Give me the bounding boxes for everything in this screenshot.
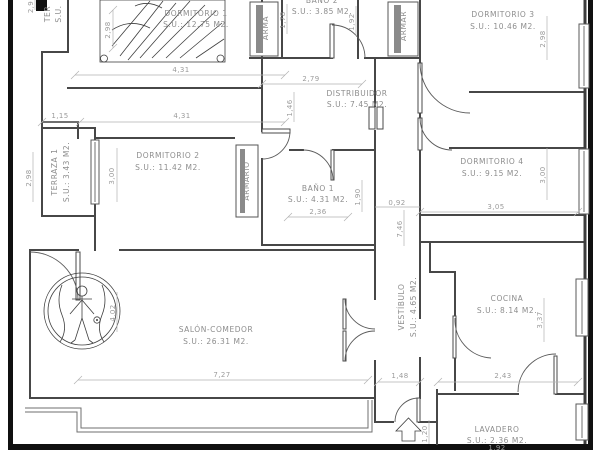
- room-label-banio1: BAÑO 1: [302, 184, 334, 193]
- window-dorm4: [579, 149, 589, 214]
- frame-left: [8, 0, 13, 450]
- labels: DORMITORIO 1 S.U.: 12.75 M2. BAÑO 2 S.U.…: [25, 0, 547, 450]
- dim-dorm2-height: 3,00: [108, 167, 116, 184]
- dim-salon-height: 4,02: [109, 304, 117, 321]
- window-terraza: [91, 140, 99, 204]
- dim-dorm3-height: 2,98: [539, 30, 547, 47]
- floor-plan-drawing: DORMITORIO 1 S.U.: 12.75 M2. BAÑO 2 S.U.…: [0, 0, 600, 450]
- window-lavadero: [576, 404, 588, 440]
- room-area-salon: S.U.: 26.31 M2.: [183, 337, 249, 346]
- room-label-vestibulo: VESTÍBULO: [397, 284, 406, 331]
- dim-terraza-height: 2,98: [25, 169, 33, 186]
- partial-label-terraza-top-area: S.U.: [54, 5, 63, 22]
- dim-distrib-width: 2,79: [302, 75, 319, 83]
- dim-corridor-width: 0,92: [388, 199, 405, 207]
- dim-corridor-length: 7,46: [396, 220, 404, 237]
- room-label-salon: SALÓN-COMEDOR: [179, 325, 254, 334]
- room-area-dormitorio1: S.U.: 12.75 M2.: [163, 20, 229, 29]
- dim-entry-width: 1,48: [391, 372, 408, 380]
- room-label-cocina: COCINA: [491, 294, 524, 303]
- room-area-banio1: S.U.: 4.31 M2.: [288, 195, 348, 204]
- partial-label-terraza-top: TER: [43, 6, 52, 23]
- room-label-lavadero: LAVADERO: [475, 425, 520, 434]
- door-salon: [30, 252, 80, 300]
- dim-lavadero-width: 1,92: [488, 444, 505, 450]
- dim-banio1-height: 1,90: [354, 188, 362, 205]
- dim-cocina-width: 2,43: [494, 372, 511, 380]
- dim-banio2-left: 1,78: [279, 11, 287, 28]
- dim-banio2-right: 1,92: [348, 13, 356, 30]
- room-label-dormitorio3: DORMITORIO 3: [471, 10, 534, 19]
- room-label-banio2: BAÑO 2: [306, 0, 338, 5]
- door-cocina: [453, 316, 491, 358]
- dim-hall-right: 4,31: [173, 112, 190, 120]
- door-dormitorio3: [418, 63, 470, 113]
- dim-dorm1-height: 2,98: [104, 21, 112, 38]
- room-label-dormitorio2: DORMITORIO 2: [136, 151, 199, 160]
- closet-label-dorm2: ARMARIO: [242, 161, 251, 200]
- dim-lavadero-height: 1,20: [421, 425, 429, 442]
- door-dormitorio4: [418, 118, 452, 150]
- double-door-distribuidor: [369, 107, 383, 129]
- window-dorm3: [579, 24, 589, 88]
- double-door-salon: [343, 299, 375, 361]
- room-area-dormitorio2: S.U.: 11.42 M2.: [135, 163, 201, 172]
- dim-dorm1-width: 4,31: [172, 66, 189, 74]
- room-label-dormitorio1: DORMITORIO 1: [164, 9, 227, 18]
- room-area-distribuidor: S.U.: 7.45 M2.: [327, 100, 387, 109]
- room-area-dormitorio3: S.U.: 10.46 M2.: [470, 22, 536, 31]
- door-lavadero: [518, 354, 557, 394]
- room-area-vestibulo: S.U.: 4.65 M2.: [409, 277, 418, 337]
- dim-banio1-width: 2,36: [309, 208, 326, 216]
- room-area-terraza1: S.U.: 3.43 M2.: [62, 142, 71, 202]
- door-dormitorio2: [262, 129, 290, 159]
- dim-dorm4-height: 3,00: [539, 166, 547, 183]
- dim-hall-left: 1,15: [51, 112, 68, 120]
- room-area-banio2: S.U.: 3.85 M2.: [292, 7, 352, 16]
- room-area-dormitorio4: S.U.: 9.15 M2.: [462, 169, 522, 178]
- windows: [91, 24, 589, 440]
- dim-distrib-left: 1,46: [286, 99, 294, 116]
- door-entrance: [395, 398, 420, 422]
- closet-label-top-right: ARMAR: [399, 11, 408, 41]
- door-banio1: [303, 150, 334, 180]
- dim-top-left-cut: 2,9: [27, 1, 35, 13]
- dim-cocina-height: 3,37: [536, 311, 544, 328]
- room-label-distribuidor: DISTRIBUIDOR: [326, 89, 387, 98]
- room-area-cocina: S.U.: 8.14 M2.: [477, 306, 537, 315]
- dim-dorm4-width: 3,05: [487, 203, 504, 211]
- closet-label-top-left: ARMA: [261, 16, 270, 40]
- dim-salon-width: 7,27: [213, 371, 230, 379]
- window-cocina: [576, 279, 588, 336]
- room-label-dormitorio4: DORMITORIO 4: [460, 157, 523, 166]
- room-label-terraza1: TERRAZA 1: [50, 149, 59, 197]
